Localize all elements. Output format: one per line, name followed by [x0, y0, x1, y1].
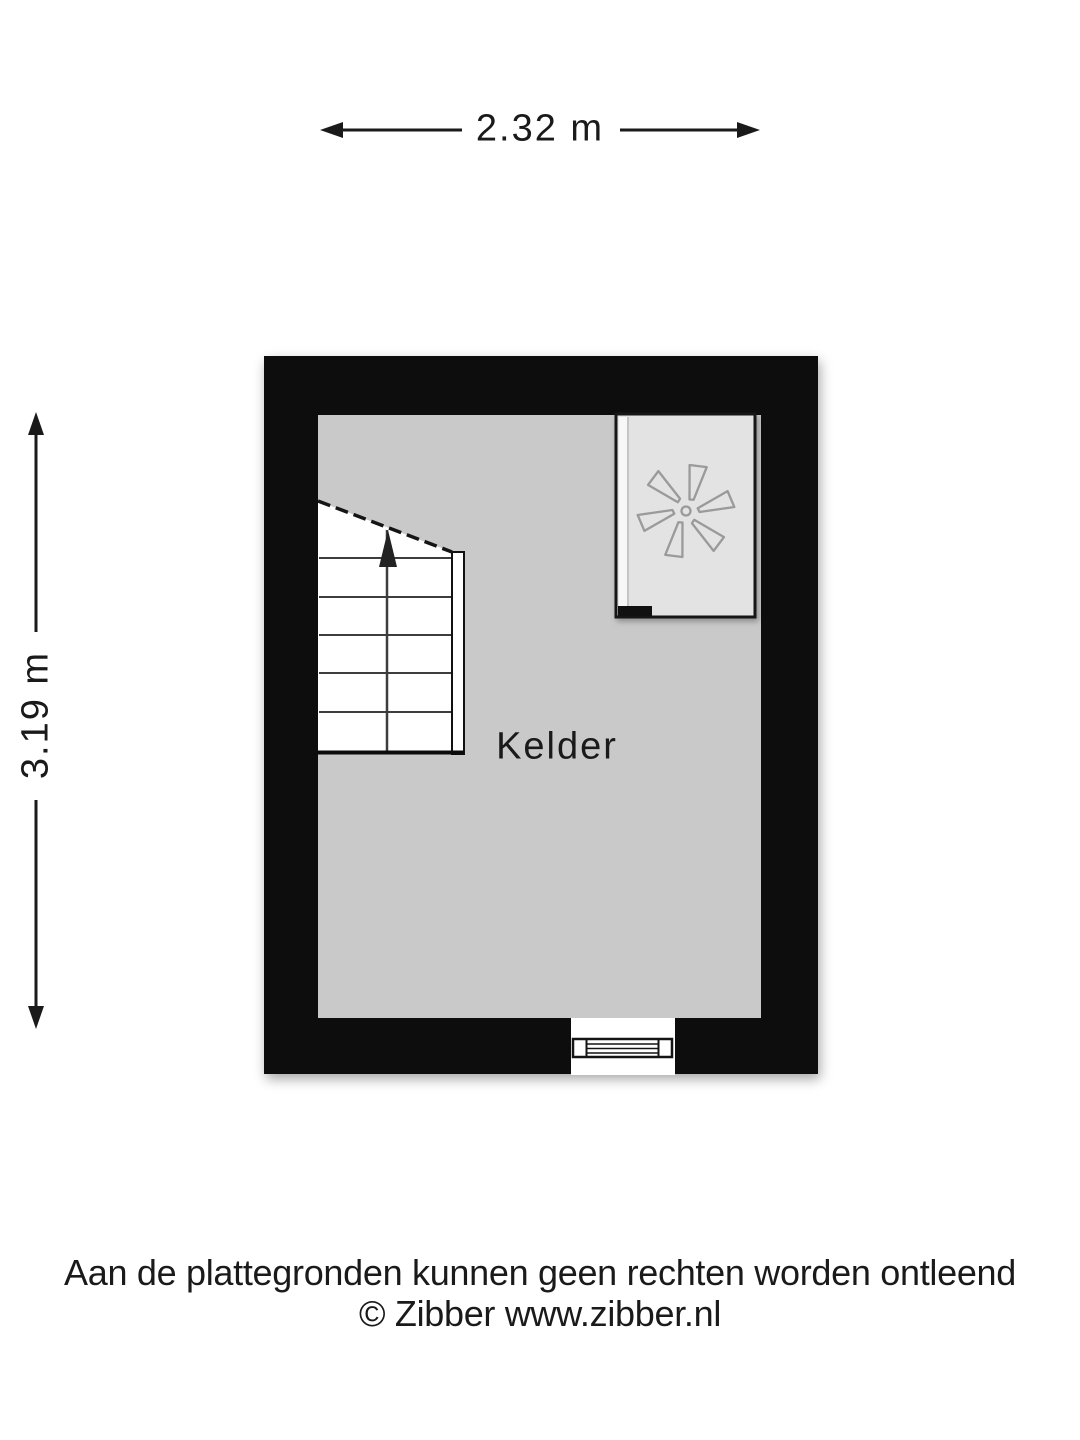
boiler-unit — [616, 414, 755, 617]
boiler-door-strip — [619, 417, 627, 614]
height-dimension-label: 3.19 m — [15, 651, 58, 779]
arrow-right-head-icon — [737, 122, 760, 138]
copyright-text: © Zibber www.zibber.nl — [0, 1293, 1080, 1334]
arrow-left-head-icon — [320, 122, 343, 138]
basement-window — [571, 1018, 675, 1075]
staircase-railing — [452, 552, 464, 754]
width-dimension-label: 2.32 m — [476, 108, 604, 151]
floorplan-page: 2.32 m 3.19 m Kelder Aan de plattegronde… — [0, 0, 1080, 1440]
boiler-base-bar — [618, 606, 652, 616]
arrow-up-head-icon — [28, 412, 44, 435]
floorplan-drawing — [0, 0, 1080, 1440]
arrow-down-head-icon — [28, 1006, 44, 1029]
disclaimer-text: Aan de plattegronden kunnen geen rechten… — [0, 1252, 1080, 1293]
footer: Aan de plattegronden kunnen geen rechten… — [0, 1252, 1080, 1334]
room-label-kelder: Kelder — [496, 726, 618, 769]
